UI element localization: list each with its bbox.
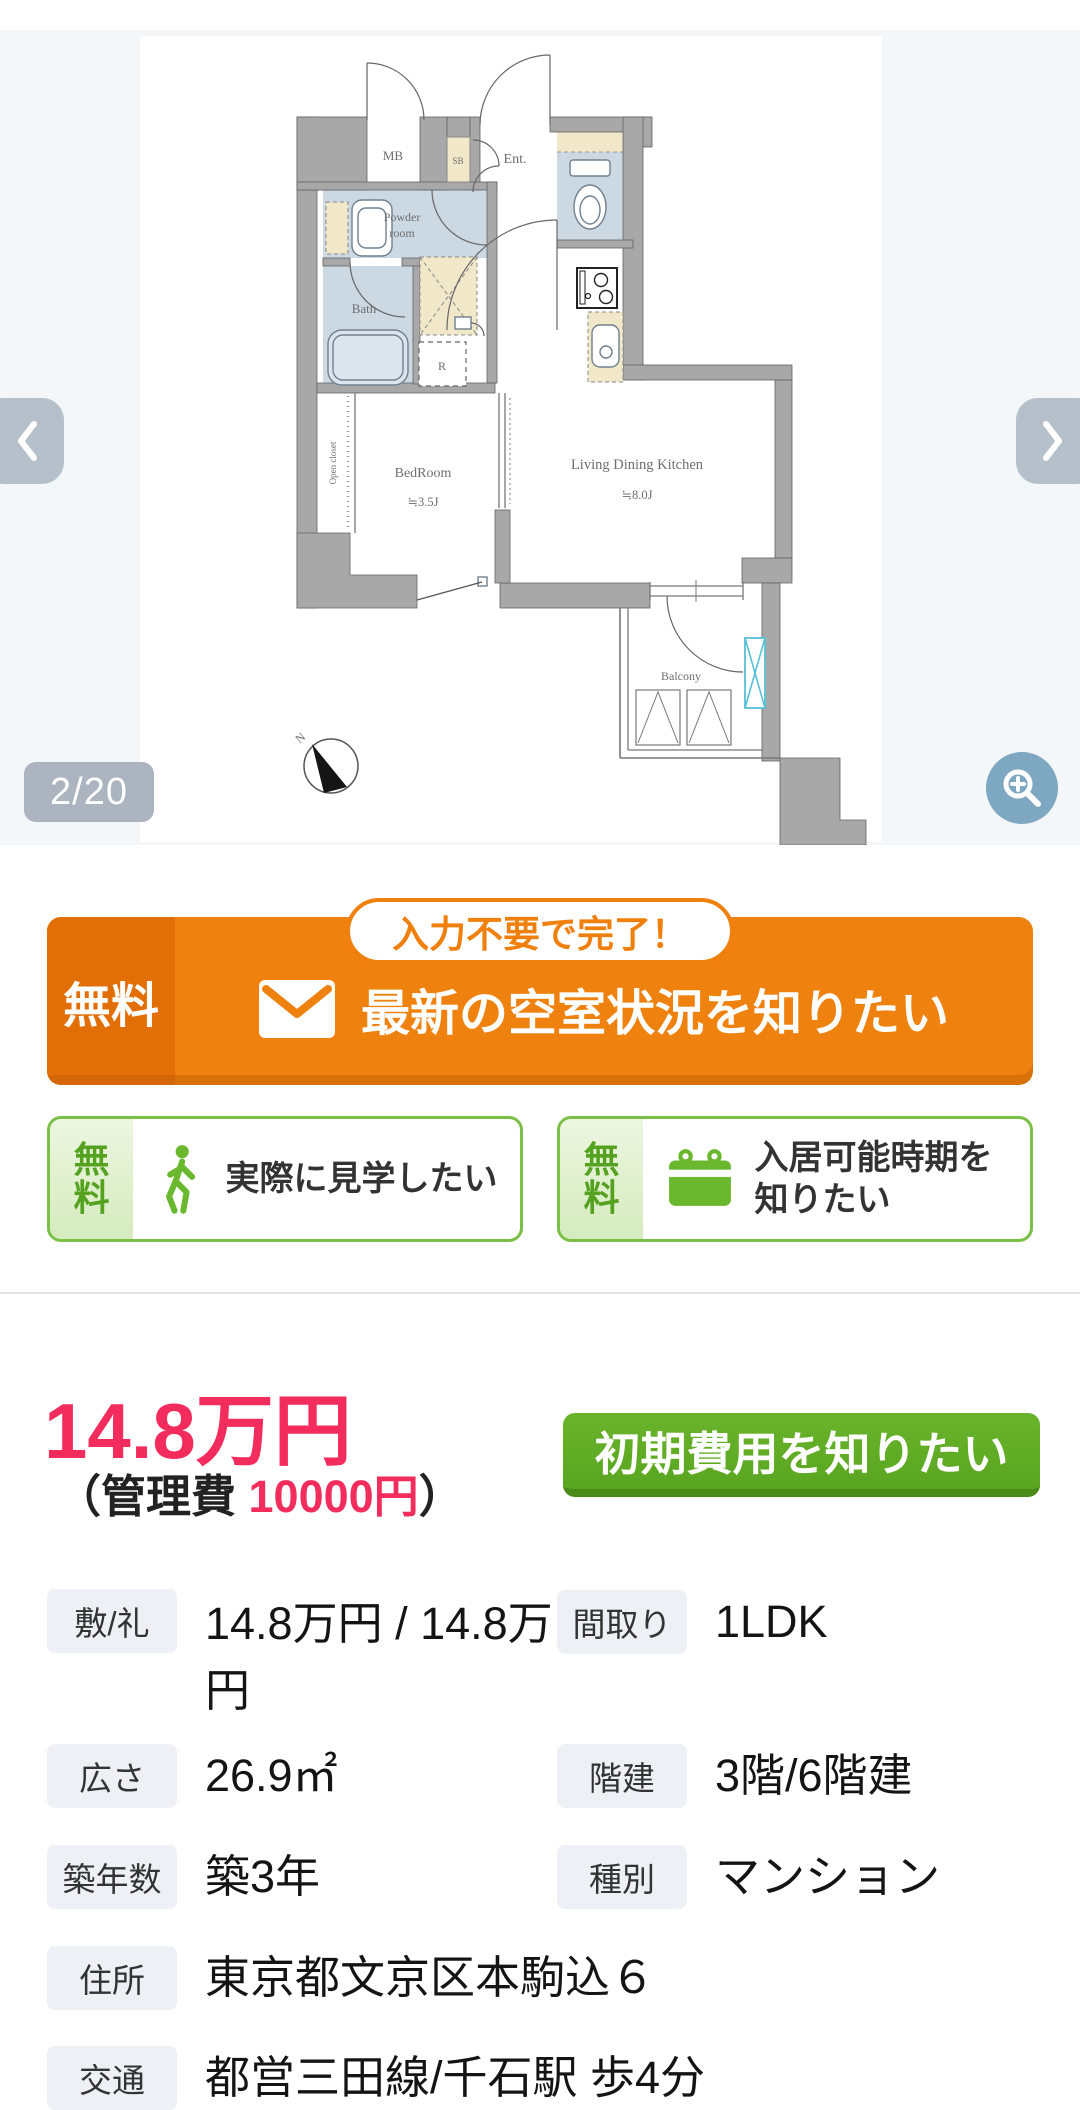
detail-row-layout: 間取り 1LDK xyxy=(557,1589,828,1656)
chevron-right-icon xyxy=(1038,419,1066,463)
detail-row-age: 築年数 築3年 xyxy=(47,1844,320,1911)
detail-row-type: 種別 マンション xyxy=(557,1844,940,1911)
envelope-icon xyxy=(259,980,335,1038)
room-label-powder-1: Powder xyxy=(384,210,421,224)
free-badge: 無料 xyxy=(582,1141,622,1217)
management-fee-open: （管理費 xyxy=(56,1471,249,1522)
cta-ribbon: 入力不要で完了！ xyxy=(346,898,734,964)
detail-value: 都営三田線/千石駅 歩4分 xyxy=(205,2045,705,2110)
detail-row-floor: 階建 3階/6階建 xyxy=(557,1743,913,1810)
detail-label: 種別 xyxy=(557,1845,687,1909)
detail-row-access: 交通 都営三田線/千石駅 歩4分 xyxy=(47,2045,705,2110)
floorplan-image[interactable]: N MB SB Ent. Powder room Bath R BedRoom … xyxy=(140,30,900,845)
detail-label: 階建 xyxy=(557,1744,687,1808)
gallery-photo-area: N MB SB Ent. Powder room Bath R BedRoom … xyxy=(0,30,1080,845)
detail-value: マンション xyxy=(715,1844,940,1911)
free-badge: 無料 xyxy=(72,1141,112,1217)
detail-label: 住所 xyxy=(47,1946,177,2010)
room-label-powder-2: room xyxy=(389,226,415,240)
detail-row-address: 住所 東京都文京区本駒込６ xyxy=(47,1945,655,2012)
zoom-button[interactable] xyxy=(986,752,1058,824)
magnifier-plus-icon xyxy=(1001,767,1043,809)
listing-page: N MB SB Ent. Powder room Bath R BedRoom … xyxy=(0,0,1080,2110)
chevron-left-icon xyxy=(14,419,42,463)
detail-row-area: 広さ 26.9㎡ xyxy=(47,1743,338,1810)
room-label-ldk: Living Dining Kitchen xyxy=(571,457,704,473)
room-label-sb: SB xyxy=(452,156,463,166)
walking-person-icon xyxy=(156,1144,204,1214)
free-badge: 無料 xyxy=(47,917,175,1085)
room-label-balcony: Balcony xyxy=(661,669,701,683)
detail-label: 広さ xyxy=(47,1744,177,1808)
visit-cta-label: 実際に見学したい xyxy=(226,1158,498,1201)
initial-cost-button[interactable]: 初期費用を知りたい xyxy=(563,1413,1040,1497)
vacancy-cta-label: 最新の空室状況を知りたい xyxy=(361,974,949,1045)
room-label-mb: MB xyxy=(383,148,404,163)
detail-value: 3階/6階建 xyxy=(715,1743,913,1810)
management-fee-line: （管理費 10000円） xyxy=(56,1474,464,1519)
detail-value: 14.8万円 / 14.8万円 xyxy=(205,1591,577,1724)
detail-row-deposit: 敷/礼 14.8万円 / 14.8万円 xyxy=(47,1589,577,1724)
room-label-bath: Bath xyxy=(352,301,377,316)
calendar-icon xyxy=(667,1148,733,1210)
detail-label: 築年数 xyxy=(47,1845,177,1909)
move-in-date-cta-button[interactable]: 無料 入居可能時期を知りたい xyxy=(557,1116,1033,1242)
visit-cta-button[interactable]: 無料 実際に見学したい xyxy=(47,1116,523,1242)
move-in-date-cta-label: 入居可能時期を知りたい xyxy=(755,1137,1007,1222)
management-fee-amount: 10000円 xyxy=(249,1471,419,1522)
detail-label: 間取り xyxy=(557,1590,687,1654)
room-label-bedroom: BedRoom xyxy=(395,466,452,481)
gallery-prev-button[interactable] xyxy=(0,398,64,484)
rent-price: 14.8万円 xyxy=(44,1392,352,1470)
detail-label: 交通 xyxy=(47,2046,177,2110)
detail-value: 26.9㎡ xyxy=(205,1743,338,1810)
detail-value: 1LDK xyxy=(715,1589,828,1656)
room-label-ldk-size: ≒8.0J xyxy=(622,488,653,502)
room-label-open-closet: Open closet xyxy=(328,441,338,484)
management-fee-close: ） xyxy=(419,1471,464,1522)
photo-counter: 2/20 xyxy=(24,762,154,822)
detail-value: 東京都文京区本駒込６ xyxy=(205,1945,655,2012)
section-divider xyxy=(0,1292,1080,1294)
detail-value: 築3年 xyxy=(205,1844,320,1911)
sub-cta-row: 無料 実際に見学したい 無料 xyxy=(47,1116,1033,1242)
room-label-refrigerator: R xyxy=(438,359,446,373)
room-label-bedroom-size: ≒3.5J xyxy=(408,495,439,509)
detail-label: 敷/礼 xyxy=(47,1589,177,1653)
gallery-next-button[interactable] xyxy=(1016,398,1080,484)
room-label-entrance: Ent. xyxy=(504,152,527,167)
